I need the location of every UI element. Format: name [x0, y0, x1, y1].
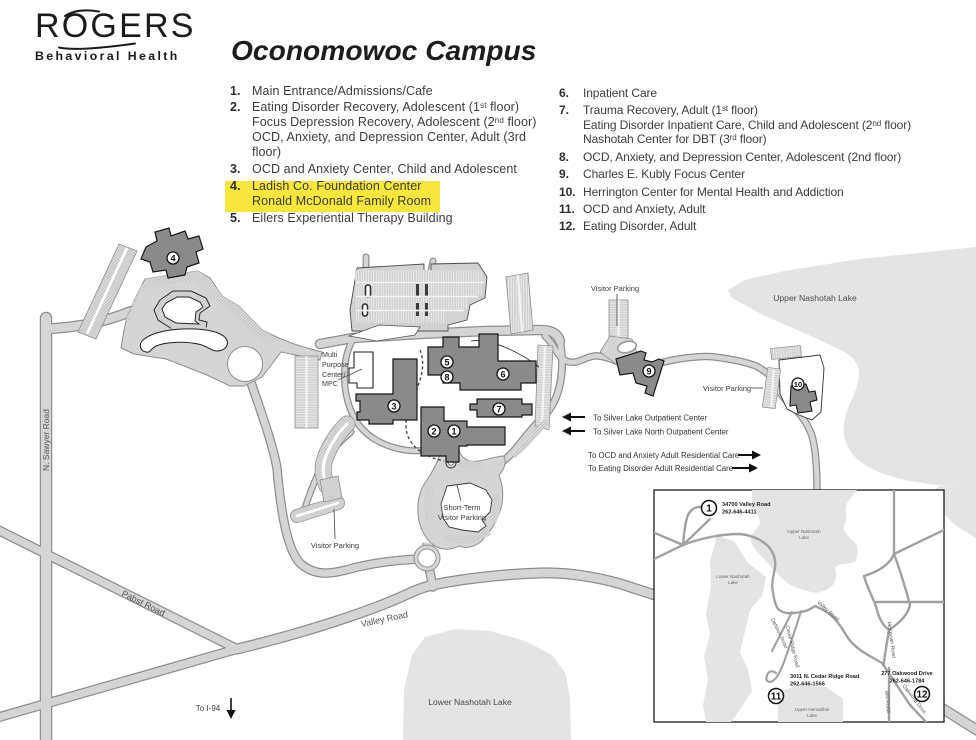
svg-text:To Silver Lake North Outpatien: To Silver Lake North Outpatient Center	[593, 428, 729, 437]
svg-text:Purpose: Purpose	[322, 360, 349, 369]
svg-text:Upper Nashotah: Upper Nashotah	[787, 529, 821, 534]
svg-text:To Eating Disorder Adult Resid: To Eating Disorder Adult Residential Car…	[588, 464, 734, 473]
svg-text:4: 4	[170, 253, 175, 263]
svg-text:Center/: Center/	[322, 370, 346, 379]
svg-text:277 Oakwood Drive: 277 Oakwood Drive	[881, 671, 933, 677]
svg-text:9: 9	[646, 366, 651, 376]
svg-text:To Silver Lake Outpatient Cent: To Silver Lake Outpatient Center	[593, 414, 707, 423]
svg-text:To OCD and Anxiety Adult Resid: To OCD and Anxiety Adult Residential Car…	[588, 451, 740, 460]
svg-text:2: 2	[431, 426, 436, 436]
svg-text:7: 7	[496, 404, 501, 414]
svg-text:3: 3	[391, 401, 396, 411]
svg-text:12: 12	[916, 690, 928, 701]
svg-text:Lower Nashotah: Lower Nashotah	[716, 574, 750, 579]
svg-text:N. Sawyer Road: N. Sawyer Road	[41, 409, 51, 471]
svg-text:Short-Term: Short-Term	[443, 503, 480, 512]
svg-text:3011 N. Cedar Ridge Road: 3011 N. Cedar Ridge Road	[790, 674, 860, 680]
svg-text:262-646-1784: 262-646-1784	[890, 679, 926, 685]
svg-text:Pabst Road: Pabst Road	[120, 588, 167, 618]
svg-text:Upper Nashotah Lake: Upper Nashotah Lake	[773, 293, 857, 303]
svg-text:MPC: MPC	[322, 379, 338, 388]
svg-text:Visitor Parking: Visitor Parking	[438, 513, 486, 522]
svg-text:To I-94: To I-94	[196, 704, 221, 713]
svg-text:8: 8	[444, 372, 449, 382]
svg-text:10: 10	[794, 380, 802, 389]
svg-text:262-646-1566: 262-646-1566	[790, 682, 825, 688]
svg-text:5: 5	[444, 357, 449, 367]
svg-text:11: 11	[771, 692, 782, 703]
svg-text:Visitor Parking: Visitor Parking	[311, 541, 359, 550]
svg-text:Lake: Lake	[799, 535, 809, 540]
svg-text:Visitor Parking: Visitor Parking	[703, 384, 751, 393]
svg-text:262-646-4411: 262-646-4411	[722, 510, 757, 516]
svg-text:34700 Valley Road: 34700 Valley Road	[722, 502, 771, 508]
svg-text:1: 1	[451, 426, 456, 436]
svg-text:6: 6	[500, 369, 505, 379]
svg-text:Lake: Lake	[807, 713, 817, 718]
svg-text:Multi: Multi	[322, 350, 338, 359]
svg-text:Lake: Lake	[728, 580, 738, 585]
svg-text:Visitor Parking: Visitor Parking	[591, 284, 639, 293]
svg-text:1: 1	[706, 504, 712, 515]
svg-text:Upper Nemahbin: Upper Nemahbin	[795, 707, 830, 712]
svg-text:Lower Nashotah Lake: Lower Nashotah Lake	[428, 697, 512, 707]
